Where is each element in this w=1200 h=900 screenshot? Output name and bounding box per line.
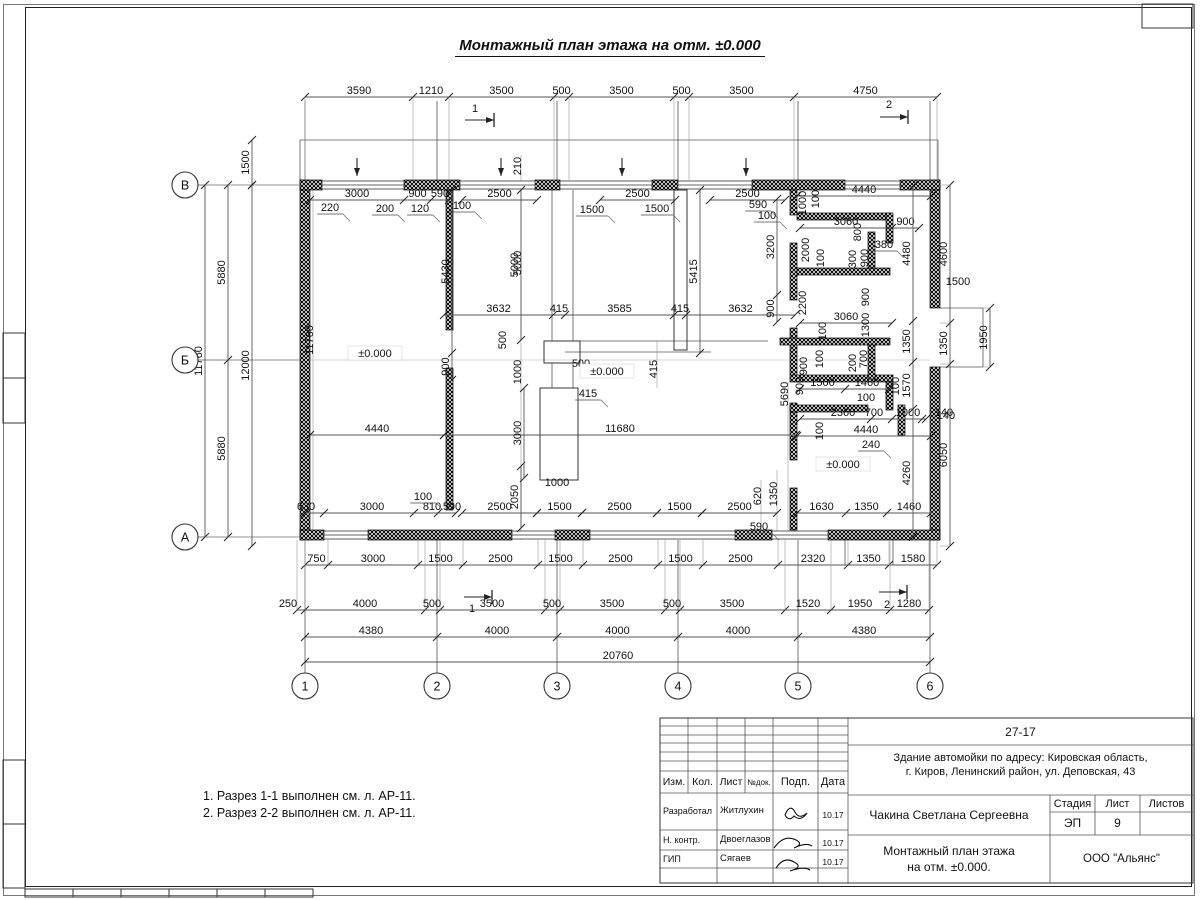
outline-rect (3, 333, 25, 378)
dim-label: 1350 (856, 553, 880, 565)
dim-label: 415 (671, 303, 689, 315)
arrow-head (619, 168, 625, 176)
dim-label: 4000 (353, 598, 377, 610)
dim-label: ±0.000 (358, 348, 392, 360)
dim-label: 2200 (797, 291, 809, 315)
dim-label: ±0.000 (826, 459, 860, 471)
dim-label: 1350 (938, 331, 950, 355)
stamp-stage-label: Стадия (1050, 796, 1095, 811)
dim-label: 590 (431, 188, 449, 200)
wall (797, 268, 890, 275)
dim-label: 3000 (512, 421, 524, 445)
axis-label: А (181, 531, 190, 545)
axis-label: 6 (927, 680, 934, 694)
wall (790, 243, 797, 300)
dim-label: 3000 (345, 188, 369, 200)
notes-block: 1. Разрез 1-1 выполнен см. л. АР-11. 2. … (203, 788, 416, 822)
dim-label: 900 (408, 188, 426, 200)
dim-label: 630 (297, 501, 315, 513)
leader-tail (780, 222, 787, 229)
dim-label: 3500 (720, 598, 744, 610)
axis-label: 3 (554, 680, 561, 694)
axis-label: 4 (675, 680, 682, 694)
stamp-role-developer: Разработал (663, 806, 712, 816)
dim-label: 1300 (860, 313, 872, 337)
dim-label: 1580 (901, 553, 925, 565)
stamp-address-line1: Здание автомойки по адресу: Кировская об… (848, 751, 1193, 765)
dim-label: 900 (440, 357, 452, 375)
dim-label: 4380 (852, 625, 876, 637)
dim-label: 1950 (848, 598, 872, 610)
arrow-head (743, 168, 749, 176)
dim-label: 4260 (901, 461, 913, 485)
dim-label: 1000 (797, 191, 809, 215)
leader-tail (343, 214, 350, 221)
dim-label: 1630 (809, 501, 833, 513)
dim-label: 900 (859, 249, 871, 267)
outline-rect (121, 889, 169, 897)
dim-label: 380 (875, 239, 893, 251)
dim-label: 5880 (216, 436, 228, 460)
stamp-col-kol: Кол. (688, 772, 717, 792)
dim-label: 900 (794, 377, 806, 395)
dim-label: 900 (860, 288, 872, 306)
dim-label: 100 (814, 350, 826, 368)
dim-label: 1460 (897, 501, 921, 513)
dim-label: 750 (307, 553, 325, 565)
axis-label: 5 (795, 680, 802, 694)
drawing-sheet: 3590121035005003500500350047503000900590… (0, 0, 1200, 900)
wall (368, 530, 512, 540)
dim-label: 100 (890, 377, 902, 395)
axis-label: 1 (302, 680, 309, 694)
wall (790, 328, 797, 375)
wall (780, 338, 890, 345)
dim-label: 4440 (854, 424, 878, 436)
dim-label: 100 (810, 190, 822, 208)
dim-label: 1520 (796, 598, 820, 610)
outline-rect (25, 889, 73, 897)
stamp-date-ncontrol: 10.17 (818, 836, 848, 850)
outline-rect (1142, 4, 1193, 28)
dim-label: 1500 (240, 150, 252, 174)
dim-label: 1000 (545, 477, 569, 489)
dim-label: 11760 (304, 325, 316, 355)
dim-label: 1570 (901, 373, 913, 397)
dim-label: 4440 (365, 423, 389, 435)
dim-label: 2500 (608, 553, 632, 565)
wall (752, 180, 845, 190)
dim-label: 4380 (359, 625, 383, 637)
dim-label: 250 (279, 598, 297, 610)
dim-label: 1500 (668, 553, 692, 565)
arrow-head (486, 117, 494, 123)
stamp-stage-value: ЭП (1050, 812, 1095, 834)
stamp-name-ncontrol: Двоеглазов (720, 834, 771, 845)
leader-tail (601, 400, 608, 407)
stamp-drawing-title-line1: Монтажный план этажа (848, 843, 1050, 859)
dim-label: 4000 (485, 625, 509, 637)
signature (776, 860, 810, 871)
wall (555, 530, 590, 540)
dim-label: 5000 (512, 251, 524, 275)
dim-label: 210 (512, 157, 524, 175)
leader-tail (608, 216, 615, 223)
dim-label: 3585 (607, 303, 631, 315)
dim-label: 2500 (607, 501, 631, 513)
dim-label: 590 (443, 501, 461, 513)
outline-rect (674, 190, 687, 350)
leader-tail (884, 451, 891, 458)
dim-label: 4750 (853, 85, 877, 97)
leader-tail (433, 215, 440, 222)
dim-label: 120 (411, 203, 429, 215)
dim-label: 2500 (625, 188, 649, 200)
dim-label: 100 (815, 249, 827, 267)
stamp-col-podp: Подп. (773, 772, 818, 792)
wall (446, 368, 453, 510)
dim-label: 2500 (488, 553, 512, 565)
dim-label: 3500 (609, 85, 633, 97)
dim-label: 4000 (605, 625, 629, 637)
dim-label: 3632 (728, 303, 752, 315)
dim-label: ±0.000 (590, 366, 624, 378)
axis-label: 2 (434, 680, 441, 694)
outline-rect (73, 889, 121, 897)
page-title: Монтажный план этажа на отм. ±0.000 (400, 37, 820, 54)
dim-label: 100 (758, 210, 776, 222)
dim-label: 5880 (216, 260, 228, 284)
dim-label: 1280 (897, 598, 921, 610)
dim-label: 900 (896, 216, 914, 228)
stamp-col-list: Лист (717, 772, 745, 792)
dim-label: 4440 (852, 184, 876, 196)
stamp-name-developer: Житлухин (720, 805, 764, 816)
dim-label: 2500 (727, 501, 751, 513)
dim-label: 500 (543, 598, 561, 610)
dim-label: 100 (814, 422, 826, 440)
dim-label: 2360 (831, 407, 855, 419)
dim-label: 3000 (360, 501, 384, 513)
note-2: 2. Разрез 2-2 выполнен см. л. АР-11. (203, 805, 416, 822)
dim-label: 3000 (361, 553, 385, 565)
dim-label: 1500 (580, 204, 604, 216)
axis-label: Б (181, 354, 189, 368)
outline-rect (3, 760, 25, 824)
outline-rect (540, 388, 578, 480)
leader-tail (475, 212, 482, 219)
dim-label: 1 (469, 603, 475, 615)
dim-label: 5415 (688, 259, 700, 283)
stamp-date-developer: 10.17 (818, 808, 848, 822)
dim-label: 2050 (509, 485, 521, 509)
arrow-head (354, 168, 360, 176)
arrow-head (899, 589, 907, 595)
signature (785, 808, 807, 819)
dim-label: 620 (752, 487, 764, 505)
outline-rect (217, 889, 265, 897)
wall (300, 180, 310, 540)
dim-label: 590 (750, 521, 768, 533)
signature (774, 838, 812, 848)
dim-label: 240 (862, 439, 880, 451)
stamp-sheet-label: Лист (1095, 796, 1140, 811)
stamp-sheets-label: Листов (1140, 796, 1193, 811)
dim-label: 1350 (854, 501, 878, 513)
dim-label: 4600 (938, 242, 950, 266)
dim-label: 1500 (645, 203, 669, 215)
dim-label: 2000 (800, 238, 812, 262)
wall (535, 180, 560, 190)
stamp-chief-name: Чакина Светлана Сергеевна (848, 795, 1050, 835)
stamp-role-ncontrol: Н. контр. (663, 835, 700, 845)
dim-label: 500 (423, 598, 441, 610)
stamp-role-gip: ГИП (663, 854, 681, 864)
dim-label: 1350 (901, 329, 913, 353)
dim-label: 1000 (896, 407, 920, 419)
dim-label: 1500 (428, 553, 452, 565)
dim-label: 500 (497, 331, 509, 349)
dim-label: 2500 (728, 553, 752, 565)
axis-label: В (181, 179, 189, 193)
wall (828, 530, 940, 540)
dim-label: 20760 (603, 650, 634, 662)
arrow-head (900, 114, 908, 120)
page-title-text: Монтажный план этажа на отм. ±0.000 (455, 37, 764, 57)
wall (900, 180, 940, 190)
arrow-head (498, 168, 504, 176)
wall (652, 180, 678, 190)
stamp-col-data: Дата (818, 772, 848, 792)
dim-label: 4000 (726, 625, 750, 637)
dim-label: 1210 (419, 85, 443, 97)
stamp-company: ООО "Альянс" (1050, 835, 1193, 883)
dim-label: 500 (663, 598, 681, 610)
dim-label: 5430 (440, 259, 452, 283)
dim-label: 2500 (487, 188, 511, 200)
wall (790, 190, 797, 215)
outline-rect (3, 824, 25, 888)
dim-label: 415 (550, 303, 568, 315)
stamp-address: Здание автомойки по адресу: Кировская об… (848, 751, 1193, 779)
dim-label: 1500 (667, 501, 691, 513)
dim-label: 4480 (901, 241, 913, 265)
dim-label: 100 (414, 491, 432, 503)
wall (300, 180, 322, 190)
dim-label: 220 (321, 202, 339, 214)
dim-label: 11680 (605, 423, 635, 435)
dim-label: 100 (453, 200, 471, 212)
stamp-sheet-value: 9 (1095, 812, 1140, 834)
dim-label: 415 (579, 388, 597, 400)
dim-label: 1500 (548, 553, 572, 565)
dim-label: 6050 (938, 443, 950, 467)
dim-label: 2 (886, 99, 892, 111)
wall (790, 488, 797, 530)
dim-label: 500 (672, 85, 690, 97)
stamp-drawing-title: Монтажный план этажа на отм. ±0.000. (848, 843, 1050, 875)
dim-label: 3060 (834, 311, 858, 323)
dim-label: 900 (765, 299, 777, 317)
stamp-col-ndok: №док. (745, 772, 773, 792)
dim-label: 12000 (240, 350, 252, 381)
dim-label: 3590 (347, 85, 371, 97)
dim-label: 3200 (765, 235, 777, 259)
dim-label: 415 (648, 360, 660, 378)
dim-label: 1 (472, 103, 478, 115)
wall (790, 405, 868, 412)
stamp-address-line2: г. Киров, Ленинский район, ул. Деповская… (848, 765, 1193, 779)
dim-label: 3500 (600, 598, 624, 610)
dim-label: 100 (817, 322, 829, 340)
stamp-col-izm: Изм. (660, 772, 688, 792)
note-1: 1. Разрез 1-1 выполнен см. л. АР-11. (203, 788, 416, 805)
dim-label: 700 (865, 407, 883, 419)
dim-label: 1350 (768, 482, 780, 506)
dim-label: 3632 (486, 303, 510, 315)
dim-label: 140 (937, 410, 955, 422)
dim-label: 500 (552, 85, 570, 97)
outline-rect (3, 378, 25, 423)
stamp-doc-number: 27-17 (848, 721, 1193, 743)
outline-rect (169, 889, 217, 897)
dim-label: 3500 (489, 85, 513, 97)
dim-label: 5690 (779, 382, 791, 406)
stamp-drawing-title-line2: на отм. ±0.000. (848, 859, 1050, 875)
dim-label: 900 (798, 357, 810, 375)
dim-label: 700 (858, 350, 870, 368)
outline-rect (265, 889, 313, 897)
dim-label: 3500 (729, 85, 753, 97)
dim-label: 200 (376, 203, 394, 215)
dim-label: 1950 (978, 325, 990, 349)
dim-label: 800 (852, 223, 864, 241)
dim-label: 1000 (512, 360, 524, 384)
stamp-date-gip: 10.17 (818, 855, 848, 869)
dim-label: 1500 (547, 501, 571, 513)
dim-label: 1460 (855, 377, 879, 389)
dim-label: 1500 (810, 377, 834, 389)
leader-tail (398, 215, 405, 222)
dim-label: 2320 (801, 553, 825, 565)
dim-label: 300 (847, 250, 859, 268)
wall (300, 530, 324, 540)
dim-label: 1500 (946, 276, 970, 288)
stamp-name-gip: Сягаев (720, 853, 751, 864)
dim-label: 100 (857, 392, 875, 404)
dim-label: 2 (884, 599, 890, 611)
